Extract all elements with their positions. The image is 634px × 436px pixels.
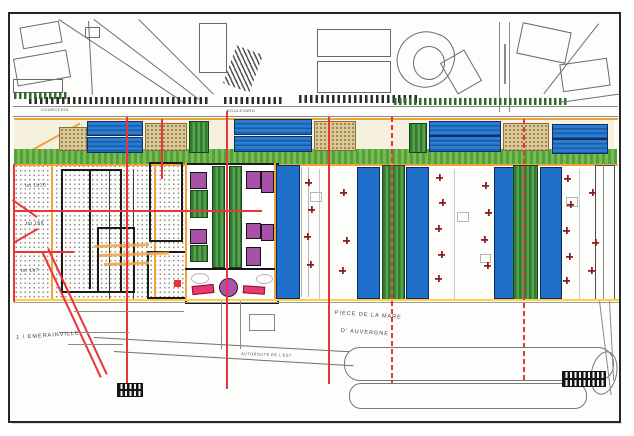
green-court: [190, 245, 208, 262]
scanned-sheet: COURCERIN BOULEVARD: [0, 0, 634, 436]
blue-roof-building: [429, 136, 501, 152]
tree-cross-symbol: [305, 179, 312, 186]
activity-building: [246, 247, 261, 266]
red-alignment-line-dashed: [523, 119, 525, 381]
road-line: [221, 301, 222, 349]
red-grid-line: [14, 210, 262, 212]
pink-feature: [243, 285, 266, 295]
blue-roof-building: [552, 124, 608, 139]
parcel-line: [319, 169, 320, 299]
green-courtyard: [189, 121, 209, 153]
tree-cross-symbol: [484, 262, 491, 269]
warehouse-building: [540, 167, 562, 299]
lot-boundary-orange: [185, 163, 187, 301]
blue-roof-building: [234, 119, 312, 135]
lot-outline: [97, 227, 135, 293]
blue-roof-building: [87, 137, 143, 153]
road-line: [74, 311, 184, 312]
tree-cross-symbol: [485, 209, 492, 216]
commune-prefix: 1 /: [16, 334, 26, 341]
tree-cross-symbol: [564, 175, 571, 182]
parcel-line: [579, 169, 580, 299]
highway-ramp-loop: [349, 383, 587, 409]
small-parcel-outline: [457, 212, 469, 222]
green-median: [382, 165, 405, 301]
red-alignment-line: [126, 117, 128, 384]
activity-building: [261, 224, 274, 241]
tree-cross-symbol: [435, 225, 442, 232]
tree-cross-symbol: [339, 267, 346, 274]
activity-building: [246, 223, 261, 239]
existing-block-outline: [19, 21, 62, 50]
tree-cross-symbol: [439, 199, 446, 206]
boulevard-edge-line: [13, 106, 618, 107]
tree-cross-symbol: [343, 237, 350, 244]
existing-block-outline: [199, 23, 227, 73]
existing-buildings-row: [224, 97, 284, 104]
band-boundary-orange: [14, 118, 618, 120]
red-boundary-line: [13, 164, 15, 302]
tree-cross-symbol: [563, 227, 570, 234]
blue-roof-building: [429, 121, 501, 136]
wooded-patch: [223, 45, 263, 92]
plan-frame: COURCERIN BOULEVARD: [8, 12, 621, 423]
lot-label: lot 1b10: [25, 183, 46, 189]
hatched-structure: [117, 390, 143, 397]
boulevard-edge-line: [13, 116, 618, 117]
red-alignment-line: [226, 111, 228, 389]
narrow-parcel-strip: [595, 165, 615, 301]
street-name-mark: [504, 44, 506, 84]
corridor-lines: [301, 167, 309, 297]
road-line: [93, 19, 199, 100]
tree-cross-symbol: [592, 239, 599, 246]
place-label-emerainville: 1 / EMERAINVILLE: [16, 332, 80, 342]
activity-building: [190, 172, 207, 189]
road-line: [240, 301, 241, 349]
tree-cross-symbol: [567, 201, 574, 208]
road-line: [114, 351, 354, 366]
lot-label: lot 1b8: [26, 221, 44, 227]
tree-cross-symbol: [340, 189, 347, 196]
activity-building: [190, 229, 207, 244]
activity-building: [246, 171, 261, 189]
red-alignment-line: [161, 119, 163, 179]
tree-cross-symbol: [307, 261, 314, 268]
blue-roof-building: [552, 139, 608, 154]
red-square-marker: [174, 280, 181, 287]
tree-cross-symbol: [308, 206, 315, 213]
small-parcel-outline: [310, 192, 322, 202]
green-median: [513, 165, 538, 301]
boundary-gray-line: [14, 302, 620, 303]
existing-apartment-outline: [317, 29, 391, 57]
parcel-line: [603, 165, 604, 299]
green-courtyard: [409, 123, 427, 153]
lot-outline: [149, 162, 183, 242]
roundabout-circle: [219, 278, 238, 297]
road-island-outline: [249, 314, 275, 331]
road-line: [68, 344, 123, 345]
beige-building: [59, 127, 87, 151]
blue-roof-building: [87, 121, 143, 136]
blue-roof-building: [234, 136, 312, 152]
tree-cross-symbol: [481, 236, 488, 243]
road-line: [58, 19, 184, 103]
warehouse-building: [276, 165, 300, 299]
commune-name: EMERAINVILLE: [28, 331, 80, 341]
tree-cross-symbol: [435, 275, 442, 282]
lot-divider: [89, 169, 91, 289]
plaza-divider: [185, 268, 275, 270]
lot-outline: [147, 251, 187, 299]
street-trees-row: [394, 98, 569, 105]
street-label-autoroute: AUTOROUTE DE L'EST: [241, 352, 292, 358]
hatched-structure: [562, 371, 606, 379]
tree-cross-symbol: [436, 174, 443, 181]
hatched-structure: [562, 379, 606, 387]
beige-building: [314, 121, 356, 151]
warehouse-building: [406, 167, 429, 299]
plaza-outline: [256, 274, 273, 284]
green-mall-strip: [212, 166, 225, 268]
red-alignment-line: [328, 117, 330, 384]
beige-building: [503, 123, 549, 151]
tree-cross-symbol: [589, 189, 596, 196]
plaza-outline: [191, 273, 209, 284]
tree-cross-symbol: [482, 182, 489, 189]
lot-boundary-orange: [51, 164, 53, 300]
place-label-d-auvergne: D' AUVERGNE: [341, 329, 389, 338]
tree-cross-symbol: [438, 251, 445, 258]
green-mall-strip: [229, 166, 242, 268]
yellow-boundary-line: [14, 299, 620, 301]
street-label-boulevard: BOULEVARD: [227, 109, 255, 113]
street-label-courcerin: COURCERIN: [41, 108, 69, 112]
tree-cross-symbol: [563, 277, 570, 284]
beige-building: [145, 123, 187, 151]
existing-apartment-outline: [317, 61, 391, 93]
parcel-line: [454, 169, 455, 299]
tree-cross-symbol: [588, 267, 595, 274]
street-trees-row: [14, 92, 69, 99]
activity-building: [261, 171, 274, 193]
existing-block-outline: [516, 22, 572, 64]
existing-block-outline: [13, 79, 63, 93]
tree-cross-symbol: [304, 233, 311, 240]
green-court: [190, 190, 208, 218]
lot-label: lot 1b7: [21, 268, 39, 274]
tree-cross-symbol: [566, 253, 573, 260]
red-alignment-line-dashed: [391, 117, 393, 384]
warehouse-building: [357, 167, 380, 299]
hatched-structure: [117, 383, 143, 390]
